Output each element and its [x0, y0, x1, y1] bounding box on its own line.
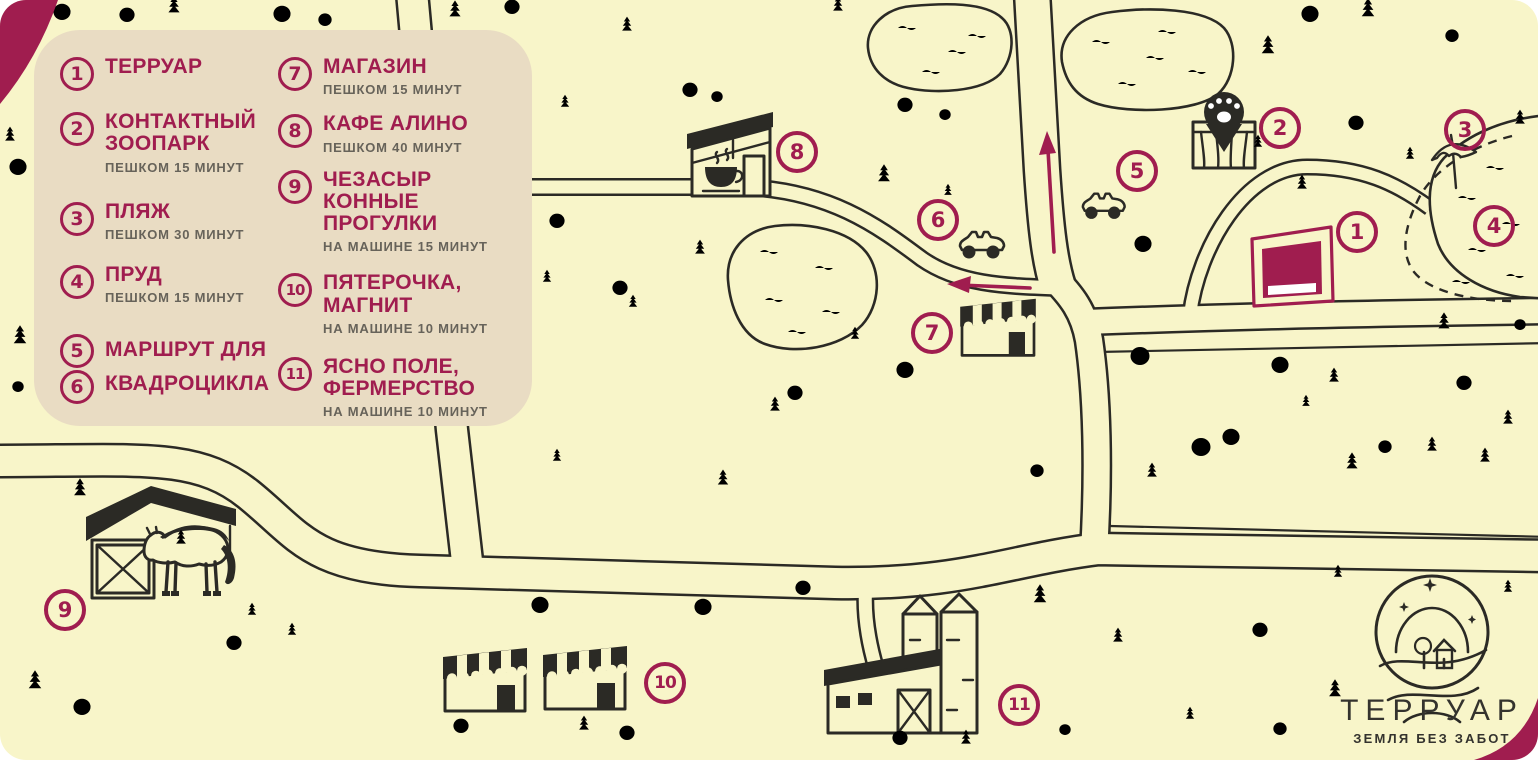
legend-item-title: ЯСНО ПОЛЕ,: [323, 356, 488, 378]
tree-icon: [1271, 357, 1288, 384]
tree-icon: [682, 83, 697, 107]
grass-icon: [1238, 295, 1245, 300]
legend-item-text: ПЛЯЖПЕШКОМ 30 МИНУТ: [105, 201, 244, 242]
tree-icon: [612, 281, 627, 305]
legend-item-title: ПЯТЕРОЧКА,: [323, 272, 488, 294]
pond-top-left: [868, 4, 1012, 91]
legend-item-number: 56: [60, 333, 94, 404]
pine-icon: [288, 620, 296, 640]
pine-icon: [833, 0, 843, 18]
horse-icon: [144, 526, 236, 596]
grass-icon: [712, 527, 719, 532]
pine-icon: [449, 0, 460, 24]
map-marker-1: 1: [1336, 211, 1378, 253]
legend-item-title: ЧЕЗАСЫР: [323, 169, 524, 191]
legend-number-circle: 7: [278, 57, 312, 91]
tree-icon: [1222, 429, 1239, 456]
map-marker-2: 2: [1259, 107, 1301, 149]
pine-icon: [579, 713, 589, 737]
grass-icon: [872, 440, 879, 445]
legend-item-number: 3: [60, 201, 94, 236]
legend-item-title: ЗООПАРК: [105, 133, 256, 155]
map-marker-5: 5: [1116, 150, 1158, 192]
pine-icon: [629, 292, 637, 312]
tree-icon: [53, 4, 70, 31]
legend-item-text: ЧЕЗАСЫРКОННЫЕ ПРОГУЛКИНА МАШИНЕ 15 МИНУТ: [323, 169, 524, 255]
legend-item-text: ПЯТЕРОЧКА,МАГНИТНА МАШИНЕ 10 МИНУТ: [323, 272, 488, 336]
legend-column-left: 1ТЕРРУАР2КОНТАКТНЫЙЗООПАРКПЕШКОМ 15 МИНУ…: [60, 56, 272, 426]
tree-icon: [1252, 623, 1267, 647]
tree-icon: [939, 109, 950, 127]
logo-subtitle: ЗЕМЛЯ БЕЗ ЗАБОТ: [1312, 731, 1538, 746]
legend-item-distance-note: ПЕШКОМ 15 МИНУТ: [105, 160, 256, 175]
legend-item-distance-note: НА МАШИНЕ 10 МИНУТ: [323, 404, 488, 419]
tree-icon: [892, 731, 907, 755]
legend-item-9: 9ЧЕЗАСЫРКОННЫЕ ПРОГУЛКИНА МАШИНЕ 15 МИНУ…: [278, 169, 524, 255]
map-marker-7: 7: [911, 312, 953, 354]
grass-icon: [1345, 63, 1352, 68]
tree-icon: [897, 98, 912, 122]
logo-house-icon: [1434, 640, 1455, 668]
grass-icon: [1108, 735, 1115, 740]
cafe-icon: [687, 112, 773, 196]
legend-item-distance-note: ПЕШКОМ 15 МИНУТ: [323, 82, 462, 97]
tree-icon: [1348, 116, 1363, 140]
tree-icon: [694, 599, 711, 626]
map-marker-10: 10: [644, 662, 686, 704]
legend-item-distance-note: ПЕШКОМ 30 МИНУТ: [105, 227, 244, 242]
shop-icon-10b: [543, 646, 627, 709]
legend-number-circle: 8: [278, 114, 312, 148]
legend-item-1: 1ТЕРРУАР: [60, 56, 272, 91]
pine-icon: [14, 322, 27, 353]
pine-icon: [1147, 460, 1157, 484]
logo-title: ТЕРРУАР: [1312, 694, 1538, 728]
legend-item-number: 11: [278, 356, 312, 391]
pine-icon: [248, 600, 256, 620]
tree-icon: [1134, 236, 1151, 263]
pine-icon: [561, 92, 569, 112]
legend-item-number: 4: [60, 264, 94, 299]
grass-icon: [60, 435, 67, 440]
tree-icon: [531, 597, 548, 624]
pine-icon: [878, 161, 890, 190]
legend-item-number: 2: [60, 111, 94, 146]
grass-icon: [778, 57, 785, 62]
grass-icon: [998, 415, 1005, 420]
pond-top-right: [1062, 9, 1234, 110]
grass-icon: [1322, 430, 1329, 435]
legend-item-title: МАГАЗИН: [323, 56, 462, 78]
pine-icon: [1346, 449, 1357, 476]
quad-bike-icon-5: [1083, 194, 1125, 219]
tree-icon: [119, 8, 134, 32]
legend-number-circle: 2: [60, 112, 94, 146]
pine-icon: [553, 446, 561, 466]
pine-icon: [622, 14, 632, 38]
pine-icon: [543, 267, 551, 287]
legend-item-number: 9: [278, 169, 312, 204]
legend-item-text: ПРУДПЕШКОМ 15 МИНУТ: [105, 264, 244, 305]
legend-number-circle: 10: [278, 273, 312, 307]
terroir-building-icon: [1252, 227, 1333, 306]
legend-item-text: ТЕРРУАР: [105, 56, 202, 78]
pine-icon: [944, 182, 952, 201]
legend-number-circle: 5: [60, 334, 94, 368]
pine-icon: [1427, 434, 1437, 458]
tree-icon: [795, 581, 810, 605]
pine-icon: [1302, 393, 1310, 412]
grass-icon: [615, 147, 622, 152]
legend-item-text: МАГАЗИНПЕШКОМ 15 МИНУТ: [323, 56, 462, 97]
shop-icon-7: [960, 299, 1036, 356]
tree-icon: [273, 6, 290, 33]
pine-icon: [1262, 32, 1275, 63]
tree-icon: [1456, 376, 1471, 400]
legend-number-circle: 1: [60, 57, 94, 91]
tree-icon: [1301, 6, 1318, 33]
legend-number-circle: 4: [60, 265, 94, 299]
tree-icon: [1192, 438, 1211, 468]
legend-item-2: 2КОНТАКТНЫЙЗООПАРКПЕШКОМ 15 МИНУТ: [60, 111, 272, 175]
pine-icon: [695, 237, 705, 261]
farm-icon: [824, 594, 977, 733]
legend-item-10: 10ПЯТЕРОЧКА,МАГНИТНА МАШИНЕ 10 МИНУТ: [278, 272, 524, 336]
legend-item-3: 3ПЛЯЖПЕШКОМ 30 МИНУТ: [60, 201, 272, 242]
tree-icon: [711, 91, 722, 109]
tree-icon: [1059, 724, 1070, 742]
legend-item-text: МАРШРУТ ДЛЯКВАДРОЦИКЛА: [105, 333, 269, 400]
legend-item-text: КОНТАКТНЫЙЗООПАРКПЕШКОМ 15 МИНУТ: [105, 111, 256, 175]
legend-item-title: КАФЕ АЛИНО: [323, 113, 468, 135]
pine-icon: [1113, 625, 1123, 649]
pine-icon: [74, 475, 86, 504]
legend-item-title: МАРШРУТ ДЛЯ: [105, 333, 269, 367]
legend-number-circle: 6: [60, 370, 94, 404]
pine-icon: [770, 394, 780, 418]
legend-item-distance-note: НА МАШИНЕ 15 МИНУТ: [323, 239, 524, 254]
pine-icon: [1503, 407, 1513, 431]
pine-icon: [1034, 581, 1047, 612]
legend-item-distance-note: ПЕШКОМ 40 МИНУТ: [323, 140, 468, 155]
legend-item-title: КОННЫЕ ПРОГУЛКИ: [323, 191, 524, 236]
legend-column-right: 7МАГАЗИНПЕШКОМ 15 МИНУТ8КАФЕ АЛИНОПЕШКОМ…: [278, 56, 524, 426]
tree-icon: [9, 159, 26, 186]
pine-icon: [1329, 365, 1339, 389]
legend-item-title: ТЕРРУАР: [105, 56, 202, 78]
grass-icon: [648, 427, 655, 432]
map-marker-4: 4: [1473, 205, 1515, 247]
legend-item-title: ПЛЯЖ: [105, 201, 244, 223]
pine-icon: [5, 124, 15, 148]
legend-item-8: 8КАФЕ АЛИНОПЕШКОМ 40 МИНУТ: [278, 113, 524, 154]
legend-item-title: КВАДРОЦИКЛА: [105, 367, 269, 401]
tree-icon: [453, 719, 468, 743]
pine-icon: [29, 667, 42, 698]
pine-icon: [1186, 704, 1194, 724]
map-marker-6: 6: [917, 199, 959, 241]
pine-icon: [1480, 445, 1490, 469]
map-marker-8: 8: [776, 131, 818, 173]
legend-panel: 1ТЕРРУАР2КОНТАКТНЫЙЗООПАРКПЕШКОМ 15 МИНУ…: [34, 30, 532, 426]
tree-icon: [1445, 29, 1458, 50]
pine-icon: [1504, 577, 1512, 597]
map-marker-11: 11: [998, 684, 1040, 726]
legend-item-distance-note: ПЕШКОМ 15 МИНУТ: [105, 290, 244, 305]
legend-item-4: 4ПРУДПЕШКОМ 15 МИНУТ: [60, 264, 272, 305]
tree-icon: [1273, 722, 1286, 743]
pine-icon: [1362, 0, 1375, 25]
map-marker-3: 3: [1444, 109, 1486, 151]
grass-icon: [648, 605, 655, 610]
tree-icon: [787, 386, 802, 410]
shop-icon-10a: [443, 648, 527, 711]
legend-item-5-6: 56МАРШРУТ ДЛЯКВАДРОЦИКЛА: [60, 333, 272, 404]
tree-icon: [896, 362, 913, 389]
pine-icon: [168, 0, 179, 20]
wave-icon: [1452, 280, 1470, 284]
legend-item-title: ПРУД: [105, 264, 244, 286]
tree-icon: [1378, 440, 1391, 461]
terroir-map-poster: 1ТЕРРУАР2КОНТАКТНЫЙЗООПАРКПЕШКОМ 15 МИНУ…: [0, 0, 1538, 760]
grass-icon: [205, 657, 212, 662]
pine-icon: [1406, 144, 1414, 164]
legend-item-7: 7МАГАЗИНПЕШКОМ 15 МИНУТ: [278, 56, 524, 97]
tree-icon: [549, 214, 564, 238]
legend-item-text: ЯСНО ПОЛЕ,ФЕРМЕРСТВОНА МАШИНЕ 10 МИНУТ: [323, 356, 488, 420]
legend-item-title: КОНТАКТНЫЙ: [105, 111, 256, 133]
grass-icon: [150, 620, 157, 625]
legend-number-circle: 11: [278, 357, 312, 391]
legend-item-title: ФЕРМЕРСТВО: [323, 378, 488, 400]
tree-icon: [226, 636, 241, 660]
tree-icon: [1514, 319, 1525, 337]
field-parcel-outline: [1097, 343, 1538, 537]
legend-number-circle: 9: [278, 170, 312, 204]
legend-item-number: 8: [278, 113, 312, 148]
legend-number-circle: 3: [60, 202, 94, 236]
tree-icon: [12, 381, 23, 399]
legend-item-distance-note: НА МАШИНЕ 10 МИНУТ: [323, 321, 488, 336]
legend-item-number: 7: [278, 56, 312, 91]
legend-item-11: 11ЯСНО ПОЛЕ,ФЕРМЕРСТВОНА МАШИНЕ 10 МИНУТ: [278, 356, 524, 420]
grass-icon: [302, 737, 309, 742]
tree-icon: [1030, 464, 1043, 485]
horse-barn-icon: [86, 486, 236, 598]
quad-bike-icon-6: [960, 232, 1004, 259]
pine-icon: [718, 467, 729, 493]
tree-icon: [1131, 347, 1150, 377]
grass-icon: [1480, 87, 1487, 92]
tree-icon: [73, 699, 90, 726]
legend-item-text: КАФЕ АЛИНОПЕШКОМ 40 МИНУТ: [323, 113, 468, 154]
legend-item-number: 10: [278, 272, 312, 307]
legend-item-title: МАГНИТ: [323, 295, 488, 317]
legend-item-number: 1: [60, 56, 94, 91]
map-marker-9: 9: [44, 589, 86, 631]
tree-icon: [504, 0, 519, 24]
tree-icon: [619, 726, 634, 750]
